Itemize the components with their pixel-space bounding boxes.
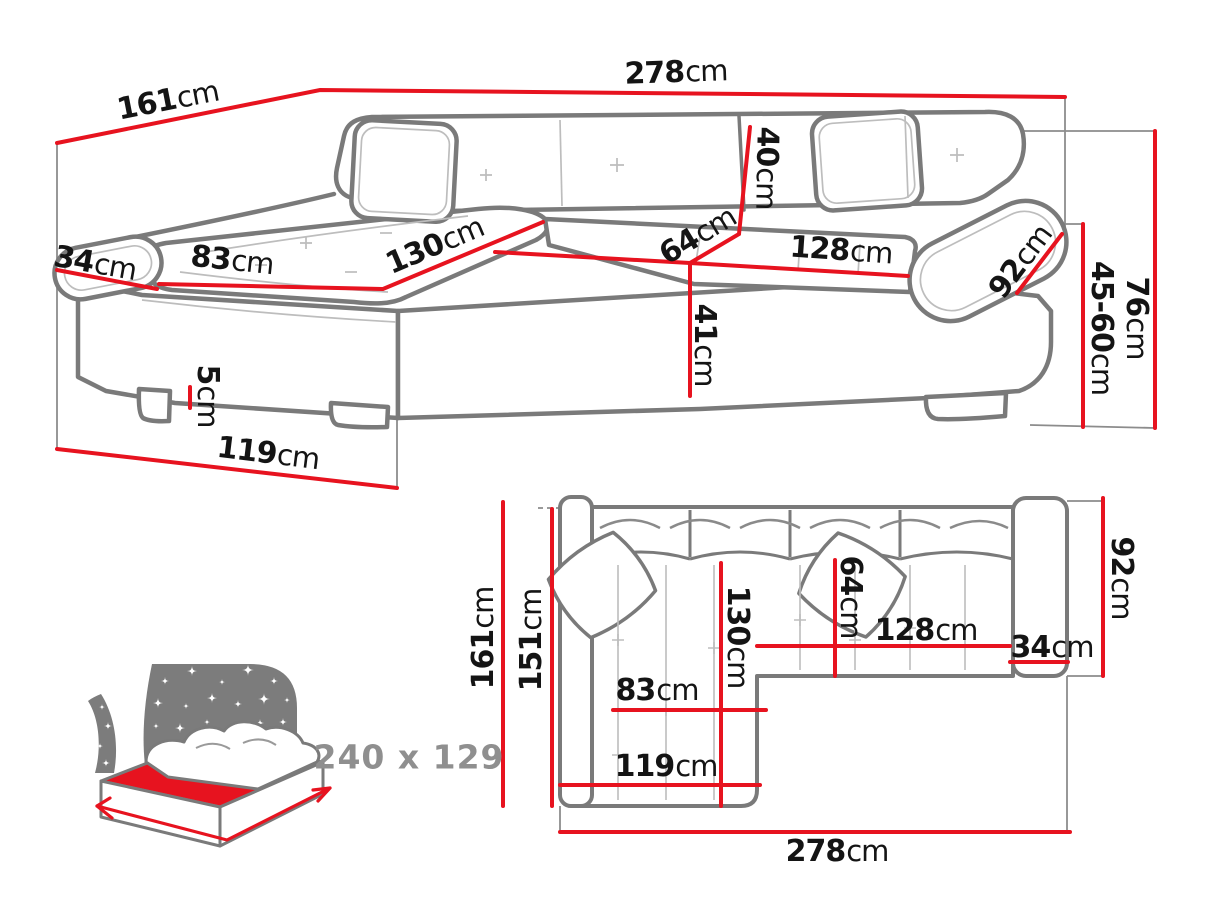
dim-value: 41 bbox=[687, 304, 722, 344]
persp-dim-278-label: 278cm bbox=[624, 56, 728, 90]
dim-unit: cm bbox=[1085, 353, 1119, 395]
dim-unit: cm bbox=[688, 344, 722, 386]
dim-value: 278 bbox=[786, 834, 846, 869]
sofa-leg bbox=[926, 393, 1006, 419]
dim-value: 64 bbox=[833, 556, 868, 596]
plan-dim-83-label: 83cm bbox=[616, 676, 699, 706]
plan-dim-119-label: 119cm bbox=[615, 752, 718, 782]
dim-unit: cm bbox=[675, 749, 717, 783]
persp-dim-41-label: 41cm bbox=[689, 304, 719, 387]
dim-unit: cm bbox=[466, 587, 500, 629]
pillow-3d-left bbox=[351, 119, 458, 222]
persp-dim-40-label: 40cm bbox=[750, 126, 781, 209]
dim-unit: cm bbox=[846, 834, 888, 868]
plan-dim-64-label: 64cm bbox=[835, 556, 865, 639]
dim-unit: cm bbox=[230, 243, 276, 281]
plan-dim-151-label: 151cm bbox=[517, 589, 547, 692]
dim-value: 34 bbox=[1011, 630, 1051, 665]
dim-unit: cm bbox=[275, 437, 321, 476]
dim-value: 76 bbox=[1119, 277, 1154, 317]
dim-value: 34 bbox=[51, 239, 96, 280]
plan-dim-161-label: 161cm bbox=[469, 587, 499, 690]
dim-value: 45-60 bbox=[1084, 261, 1119, 352]
dim-value: 128 bbox=[789, 229, 851, 268]
plan-dim-92-label: 92cm bbox=[1106, 537, 1136, 620]
dim-unit: cm bbox=[834, 596, 868, 638]
dim-value: 278 bbox=[624, 55, 685, 92]
dim-value: 119 bbox=[215, 430, 278, 472]
dim-value: 119 bbox=[615, 749, 675, 784]
dim-unit: cm bbox=[935, 613, 977, 647]
persp-dim-83-label: 83cm bbox=[189, 242, 275, 281]
dim-unit: cm bbox=[656, 673, 698, 707]
diagram-canvas bbox=[0, 0, 1214, 910]
dim-value: 40 bbox=[749, 126, 785, 166]
dim-unit: cm bbox=[721, 646, 755, 688]
dim-value: 83 bbox=[616, 673, 656, 708]
dim-unit: cm bbox=[92, 246, 139, 287]
dim-value: 5 bbox=[190, 364, 225, 384]
plan-dim-34-label: 34cm bbox=[1011, 633, 1094, 663]
dim-value: 151 bbox=[514, 632, 549, 692]
sofa-dimensions-diagram: 161cm 278cm 40cm 34cm 83cm 130cm 64cm 12… bbox=[0, 0, 1214, 910]
plan-dim-278-label: 278cm bbox=[786, 837, 889, 867]
bed-size-label: 240 x 129 bbox=[313, 741, 504, 774]
sofa-leg bbox=[331, 403, 388, 427]
dim-unit: cm bbox=[191, 385, 225, 427]
persp-dim-45-60-label: 45-60cm bbox=[1086, 261, 1116, 395]
bed-size-value: 240 x 129 bbox=[313, 738, 504, 777]
dim-value: 83 bbox=[189, 239, 232, 278]
dim-unit: cm bbox=[1051, 630, 1093, 664]
plan-left-armrest bbox=[560, 497, 592, 806]
dim-value: 128 bbox=[875, 613, 935, 648]
dim-unit: cm bbox=[514, 589, 548, 631]
dim-value: 161 bbox=[466, 630, 501, 690]
dim-unit: cm bbox=[849, 234, 893, 271]
dim-unit: cm bbox=[1105, 577, 1139, 619]
persp-dim-76-label: 76cm bbox=[1121, 277, 1151, 360]
sofa-leg bbox=[139, 389, 170, 421]
plan-dim-128-label: 128cm bbox=[875, 616, 978, 646]
bed-sleeping-function-icon bbox=[88, 664, 330, 846]
dim-value: 130 bbox=[720, 586, 755, 646]
dim-unit: cm bbox=[749, 167, 784, 210]
persp-dim-128-label: 128cm bbox=[789, 232, 894, 269]
dim-unit: cm bbox=[685, 53, 728, 88]
dim-unit: cm bbox=[1120, 317, 1154, 359]
persp-dim-5-label: 5cm bbox=[192, 364, 222, 427]
plan-dim-130-label: 130cm bbox=[722, 586, 752, 689]
dim-value: 92 bbox=[1104, 537, 1139, 577]
